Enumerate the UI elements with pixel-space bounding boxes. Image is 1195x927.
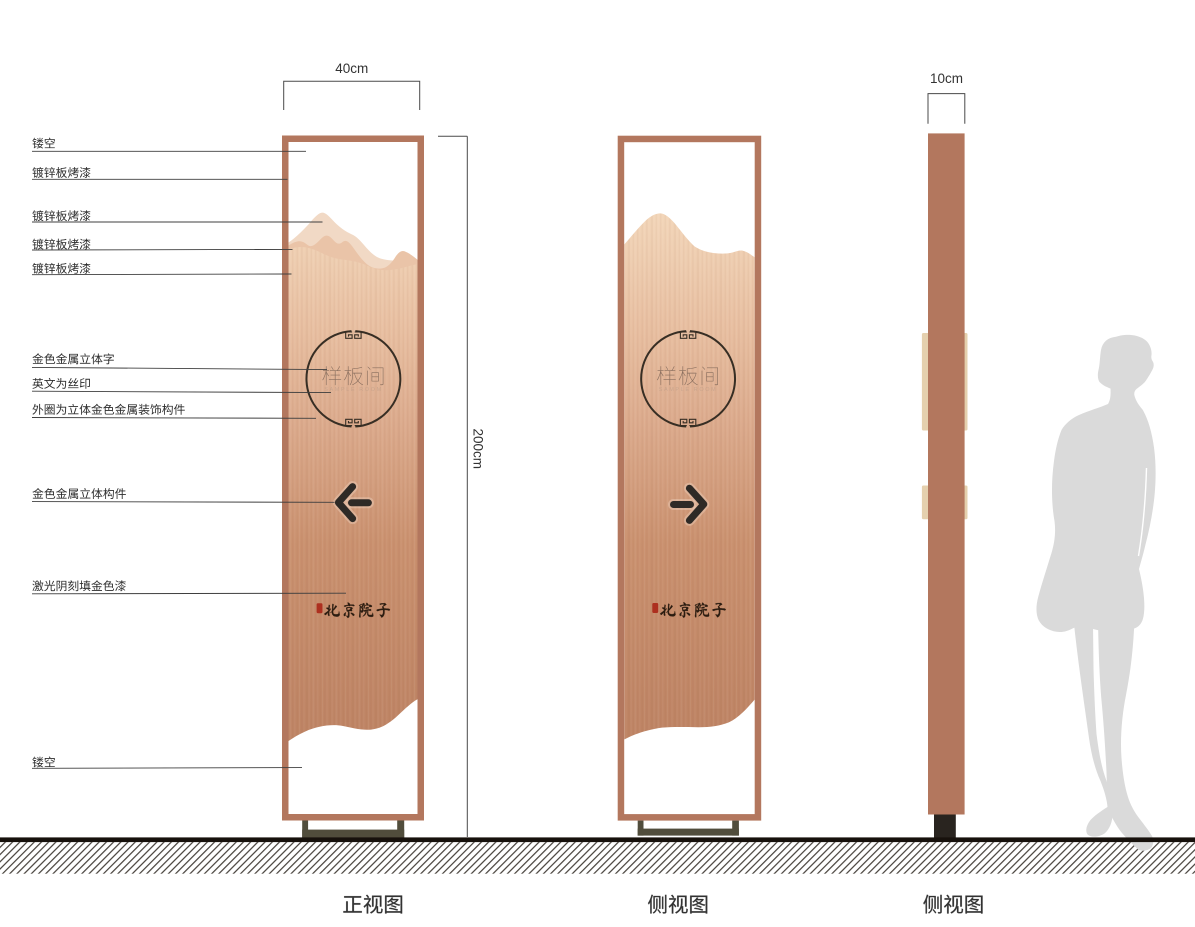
svg-text:40cm: 40cm	[335, 61, 368, 76]
svg-text:SAMPLE ROOM: SAMPLE ROOM	[324, 387, 383, 393]
svg-text:10cm: 10cm	[930, 71, 963, 86]
svg-text:SAMPLE ROOM: SAMPLE ROOM	[659, 387, 718, 393]
svg-text:200cm: 200cm	[471, 429, 486, 470]
